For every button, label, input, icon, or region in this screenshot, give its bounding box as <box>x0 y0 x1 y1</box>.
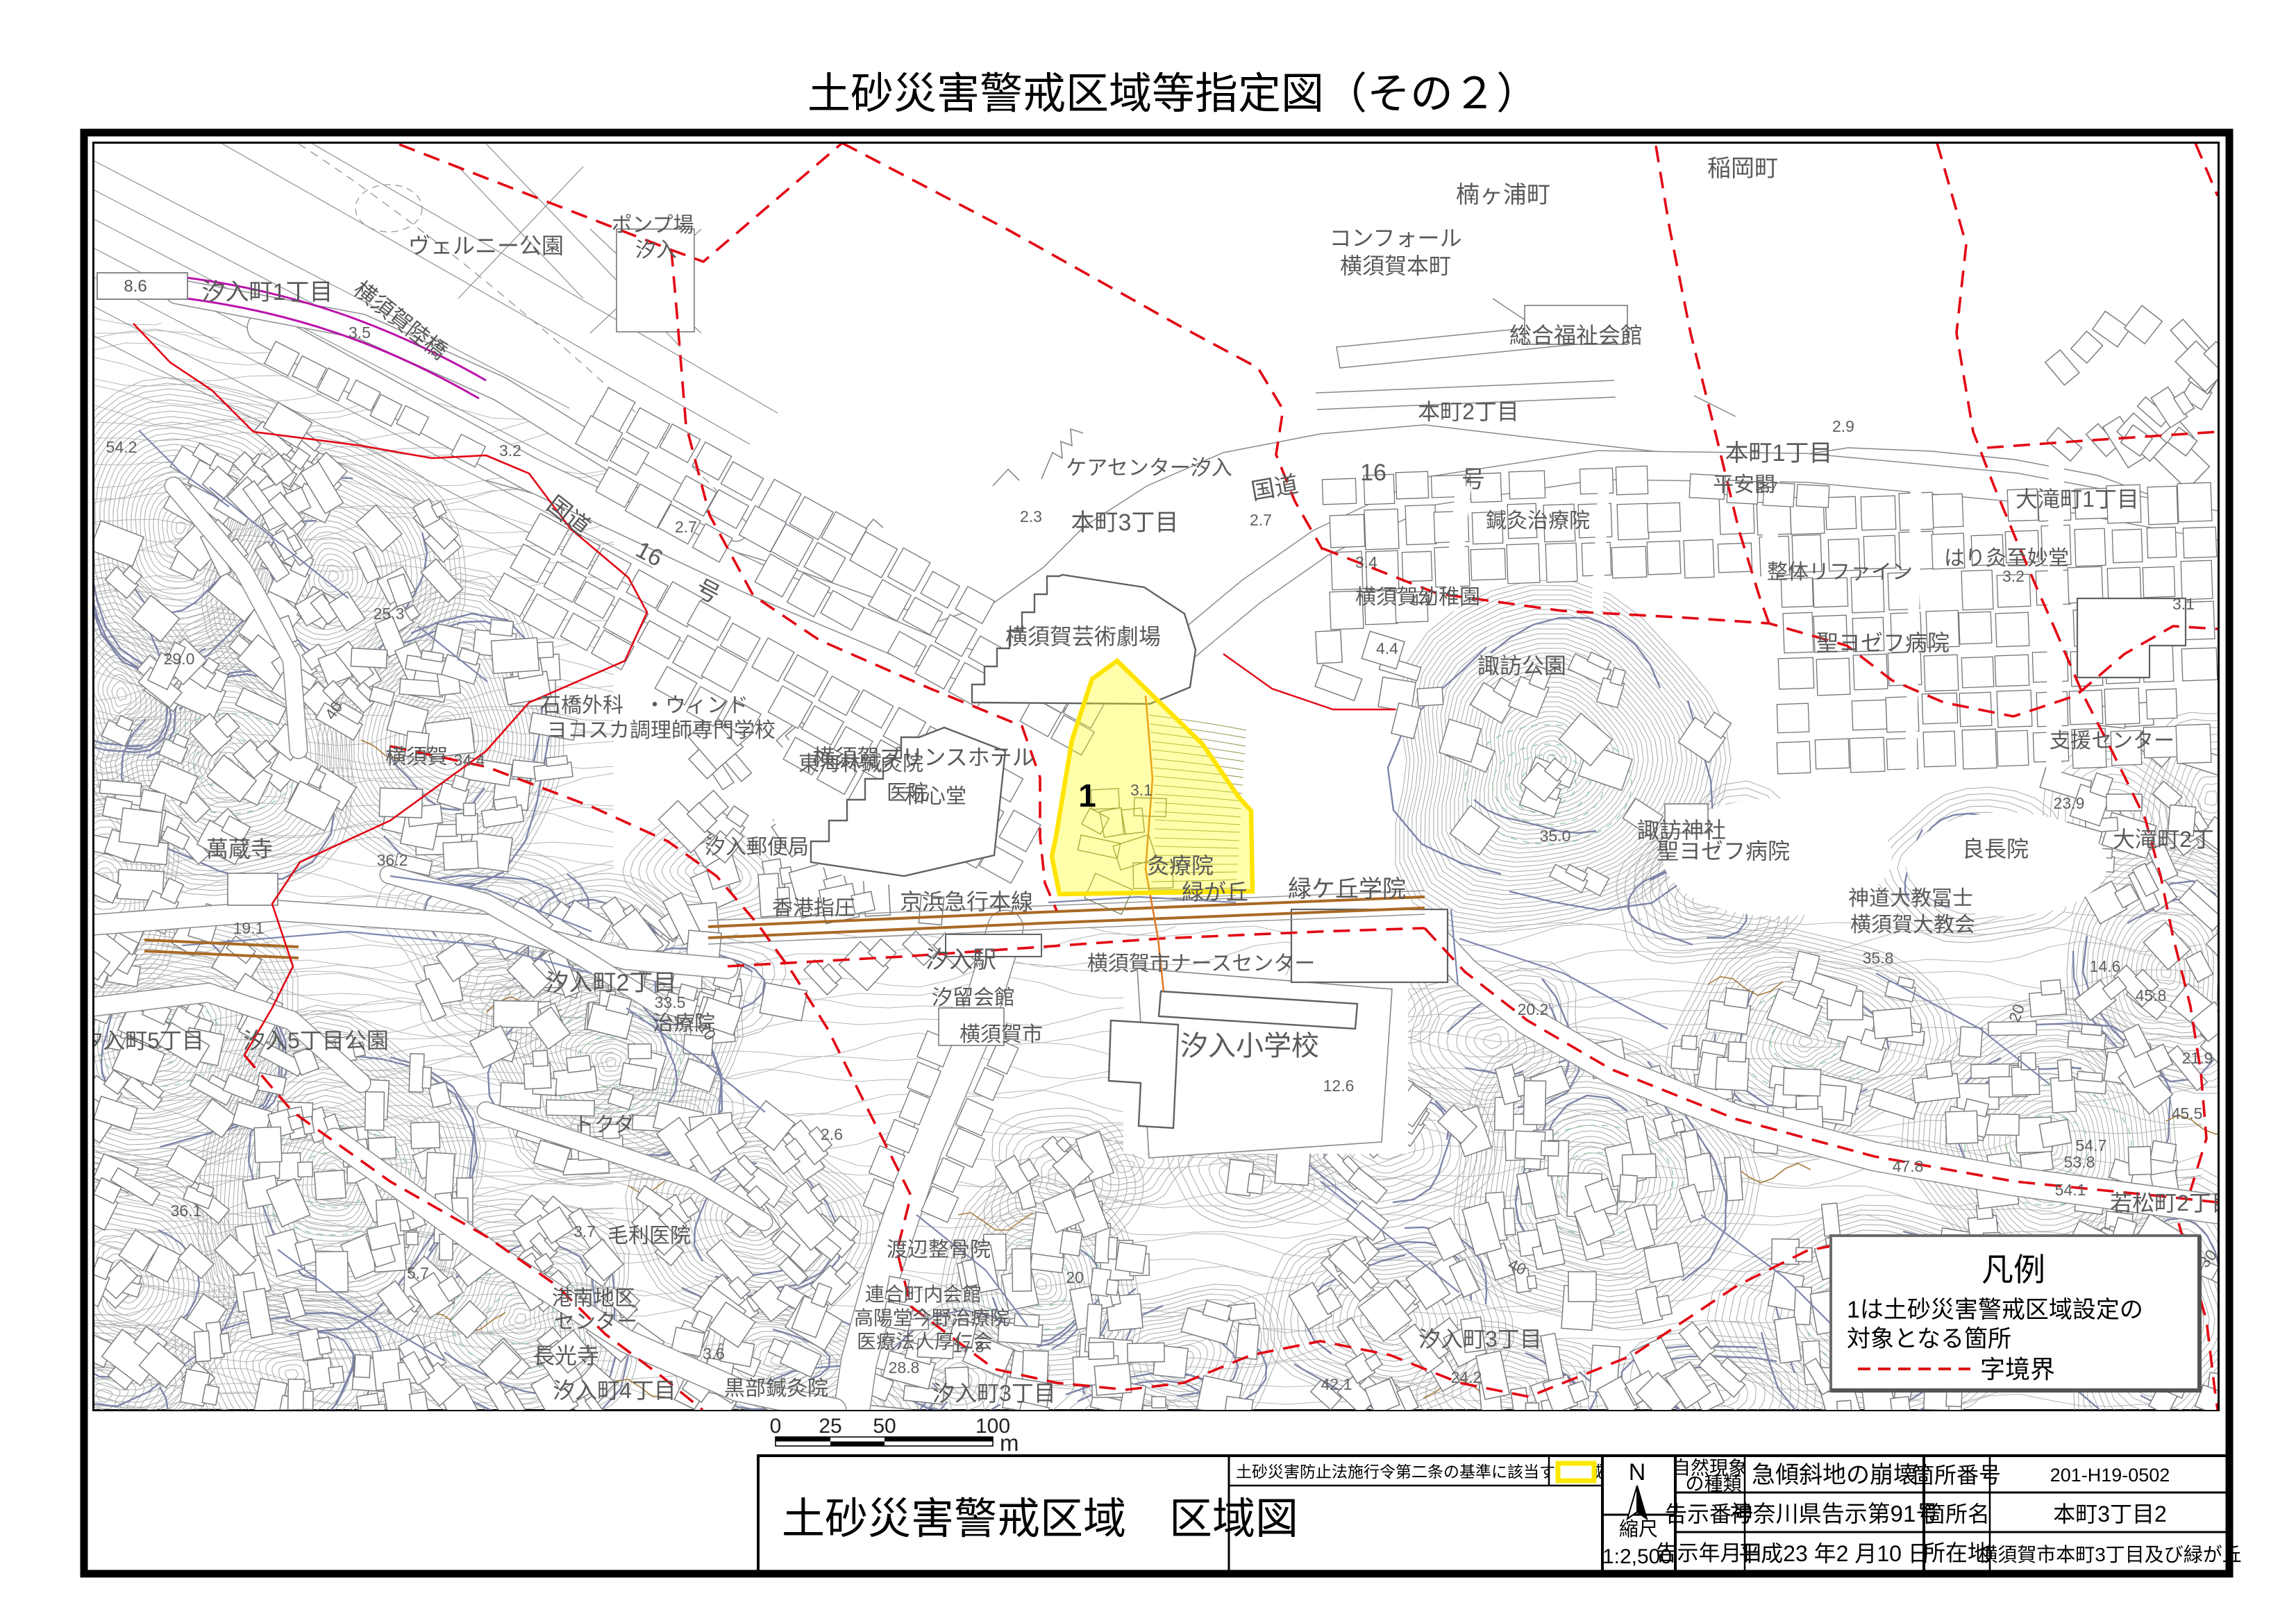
svg-text:大滝町1丁目: 大滝町1丁目 <box>2016 487 2139 512</box>
svg-text:2.7: 2.7 <box>1250 511 1272 529</box>
svg-text:香港指圧: 香港指圧 <box>772 897 855 920</box>
svg-text:聖ヨゼフ病院: 聖ヨゼフ病院 <box>1816 630 1950 655</box>
svg-text:石橋外科 ・ウィンド: 石橋外科 ・ウィンド <box>540 694 748 717</box>
svg-text:ヴェルニー公園: ヴェルニー公園 <box>408 233 564 258</box>
svg-text:45.5: 45.5 <box>2172 1104 2203 1122</box>
svg-text:鍼灸治療院: 鍼灸治療院 <box>1486 510 1590 532</box>
svg-text:本町1丁目: 本町1丁目 <box>1725 440 1833 466</box>
svg-text:36.1: 36.1 <box>171 1202 202 1220</box>
svg-text:コンフォール: コンフォール <box>1329 226 1461 251</box>
svg-text:17.8: 17.8 <box>953 1338 984 1356</box>
svg-text:本町3丁目2: 本町3丁目2 <box>2053 1502 2167 1527</box>
svg-text:4.4: 4.4 <box>1376 639 1398 657</box>
svg-text:54.2: 54.2 <box>106 438 137 456</box>
svg-text:汐入駅: 汐入駅 <box>925 947 996 973</box>
svg-text:横須賀本町: 横須賀本町 <box>1340 253 1451 278</box>
svg-text:諏訪公園: 諏訪公園 <box>1477 653 1566 678</box>
svg-text:2.7: 2.7 <box>1756 478 1778 496</box>
svg-text:号: 号 <box>1461 466 1485 493</box>
svg-text:灸療院: 灸療院 <box>1147 853 1214 878</box>
svg-text:支援センター: 支援センター <box>2050 730 2175 752</box>
svg-text:の種類: の種類 <box>1686 1474 1742 1495</box>
svg-text:29.0: 29.0 <box>164 650 195 668</box>
svg-text:53.8: 53.8 <box>2064 1153 2095 1171</box>
svg-text:横須賀市ナースセンター: 横須賀市ナースセンター <box>1087 952 1316 975</box>
svg-text:42.1: 42.1 <box>1321 1375 1352 1393</box>
svg-text:20.2: 20.2 <box>1518 1000 1549 1018</box>
svg-text:汐入町3丁目: 汐入町3丁目 <box>1418 1327 1542 1352</box>
svg-text:神道大教冨士: 神道大教冨士 <box>1848 887 1973 910</box>
svg-text:汐入5丁目公園: 汐入5丁目公園 <box>243 1028 389 1053</box>
svg-text:2.9: 2.9 <box>1832 417 1854 435</box>
svg-text:土砂災害警戒区域 区域図: 土砂災害警戒区域 区域図 <box>782 1495 1298 1543</box>
svg-text:汐入郵便局: 汐入郵便局 <box>705 836 809 859</box>
svg-text:トクダ: トクダ <box>573 1113 635 1136</box>
svg-text:4.1: 4.1 <box>1411 591 1433 609</box>
svg-text:54.1: 54.1 <box>2055 1181 2086 1199</box>
svg-text:汐入町3丁目: 汐入町3丁目 <box>932 1381 1056 1406</box>
svg-text:緑ケ丘学院: 緑ケ丘学院 <box>1288 876 1406 902</box>
svg-text:35.8: 35.8 <box>1863 949 1894 967</box>
svg-text:対象となる箇所: 対象となる箇所 <box>1847 1326 2011 1352</box>
svg-text:連合町内会館: 連合町内会館 <box>865 1284 982 1305</box>
svg-text:センター: センター <box>554 1311 637 1334</box>
svg-text:35.0: 35.0 <box>1540 827 1571 845</box>
svg-text:毛利医院: 毛利医院 <box>607 1225 691 1247</box>
svg-text:緑が丘: 緑が丘 <box>1182 880 1248 905</box>
svg-text:N: N <box>1629 1459 1646 1486</box>
svg-text:m: m <box>1000 1430 1019 1456</box>
svg-text:3.6: 3.6 <box>703 1345 725 1363</box>
svg-text:25: 25 <box>819 1415 841 1438</box>
svg-text:汐入: 汐入 <box>635 239 677 262</box>
svg-text:黒部鍼灸院: 黒部鍼灸院 <box>724 1377 828 1400</box>
svg-text:3.2: 3.2 <box>2002 567 2025 585</box>
svg-text:汐入町5丁目: 汐入町5丁目 <box>81 1028 204 1053</box>
svg-text:33.5: 33.5 <box>655 993 686 1011</box>
svg-text:1は土砂災害警戒区域設定の: 1は土砂災害警戒区域設定の <box>1847 1297 2143 1323</box>
svg-text:19.1: 19.1 <box>233 919 265 937</box>
svg-text:50: 50 <box>873 1415 896 1438</box>
svg-text:横須賀大教会: 横須賀大教会 <box>1850 914 1975 936</box>
svg-text:汐留会館: 汐留会館 <box>932 986 1015 1009</box>
svg-text:長光寺: 長光寺 <box>533 1343 599 1368</box>
svg-text:急傾斜地の崩壊: 急傾斜地の崩壊 <box>1752 1462 1917 1488</box>
svg-text:医院: 医院 <box>887 782 928 805</box>
svg-text:2.3: 2.3 <box>1020 507 1042 525</box>
svg-text:3.1: 3.1 <box>2172 595 2195 613</box>
svg-text:2.6: 2.6 <box>821 1125 843 1143</box>
svg-text:16: 16 <box>1360 460 1386 486</box>
svg-text:横須賀: 横須賀 <box>385 746 448 768</box>
svg-text:ケアセンター汐入: ケアセンター汐入 <box>1066 457 1232 480</box>
svg-text:3.5: 3.5 <box>349 323 371 342</box>
svg-text:34.4: 34.4 <box>454 751 485 769</box>
svg-text:2.7: 2.7 <box>675 518 697 536</box>
svg-text:聖ヨゼフ病院: 聖ヨゼフ病院 <box>1657 839 1790 864</box>
svg-text:23.9: 23.9 <box>2054 794 2085 812</box>
svg-text:土砂災害防止法施行令第二条の基準に該当する区域: 土砂災害防止法施行令第二条の基準に該当する区域 <box>1236 1463 1603 1481</box>
svg-text:高陽堂今野治療院: 高陽堂今野治療院 <box>854 1307 1009 1329</box>
svg-text:201-H19-0502: 201-H19-0502 <box>2050 1465 2170 1486</box>
svg-text:稲岡町: 稲岡町 <box>1707 155 1778 182</box>
svg-text:5.7: 5.7 <box>407 1264 429 1282</box>
svg-text:21.9: 21.9 <box>2182 1049 2213 1067</box>
svg-text:0: 0 <box>770 1415 782 1438</box>
svg-text:汐入町1丁目: 汐入町1丁目 <box>202 279 333 305</box>
svg-text:横須賀芸術劇場: 横須賀芸術劇場 <box>1005 624 1161 649</box>
svg-text:京浜急行本線: 京浜急行本線 <box>900 889 1033 914</box>
svg-text:24.2: 24.2 <box>1451 1368 1482 1386</box>
svg-text:1: 1 <box>1078 777 1096 814</box>
svg-text:横須賀市本町3丁目及び緑が丘: 横須賀市本町3丁目及び緑が丘 <box>1978 1544 2242 1565</box>
svg-text:8.6: 8.6 <box>124 277 146 296</box>
svg-text:箇所番号: 箇所番号 <box>1912 1463 2001 1488</box>
svg-text:萬蔵寺: 萬蔵寺 <box>206 836 273 861</box>
svg-text:20: 20 <box>1066 1268 1084 1286</box>
svg-text:3.2: 3.2 <box>499 442 521 460</box>
svg-text:平成23 年2 月10 日: 平成23 年2 月10 日 <box>1738 1541 1930 1566</box>
svg-text:47.8: 47.8 <box>1893 1157 1924 1175</box>
svg-text:28.8: 28.8 <box>889 1359 920 1377</box>
svg-text:36.2: 36.2 <box>377 851 408 869</box>
svg-text:54.7: 54.7 <box>2076 1136 2107 1154</box>
svg-text:汐入町2丁目: 汐入町2丁目 <box>546 970 677 996</box>
svg-text:3.4: 3.4 <box>1355 553 1377 571</box>
svg-text:土砂災害警戒区域等指定図（その２）: 土砂災害警戒区域等指定図（その２） <box>807 70 1539 118</box>
svg-text:本町2丁目: 本町2丁目 <box>1418 399 1519 424</box>
svg-text:12.6: 12.6 <box>1323 1077 1355 1095</box>
svg-text:箇所名: 箇所名 <box>1923 1502 1990 1527</box>
svg-text:良長院: 良長院 <box>1962 836 2029 861</box>
svg-text:14.6: 14.6 <box>2090 957 2121 975</box>
svg-text:汐入小学校: 汐入小学校 <box>1180 1031 1319 1061</box>
svg-text:港南地区: 港南地区 <box>552 1287 635 1310</box>
svg-text:本町3丁目: 本町3丁目 <box>1071 510 1179 536</box>
svg-text:渡辺整骨院: 渡辺整骨院 <box>887 1238 991 1261</box>
svg-text:東海林鍼灸院: 東海林鍼灸院 <box>798 752 923 775</box>
svg-text:神奈川県告示第91号: 神奈川県告示第91号 <box>1730 1501 1939 1527</box>
svg-text:3.1: 3.1 <box>1130 781 1153 799</box>
svg-text:縮尺: 縮尺 <box>1619 1518 1658 1540</box>
svg-text:汐入町4丁目: 汐入町4丁目 <box>553 1378 676 1403</box>
svg-text:総合福祉会館: 総合福祉会館 <box>1509 323 1643 348</box>
svg-text:25.3: 25.3 <box>374 605 405 623</box>
svg-text:ポンプ場: ポンプ場 <box>611 214 694 237</box>
svg-text:横須賀市: 横須賀市 <box>960 1023 1043 1046</box>
svg-text:3.7: 3.7 <box>573 1222 596 1241</box>
svg-text:字境界: 字境界 <box>1980 1355 2055 1384</box>
svg-text:楠ヶ浦町: 楠ヶ浦町 <box>1456 182 1550 208</box>
svg-text:凡例: 凡例 <box>1981 1252 2045 1288</box>
svg-text:若松町2丁目: 若松町2丁目 <box>2110 1191 2234 1216</box>
svg-text:ヨコスカ調理師専門学校: ヨコスカ調理師専門学校 <box>546 719 776 742</box>
svg-text:整体リファイン: 整体リファイン <box>1767 561 1913 584</box>
svg-text:45.8: 45.8 <box>2136 986 2167 1004</box>
